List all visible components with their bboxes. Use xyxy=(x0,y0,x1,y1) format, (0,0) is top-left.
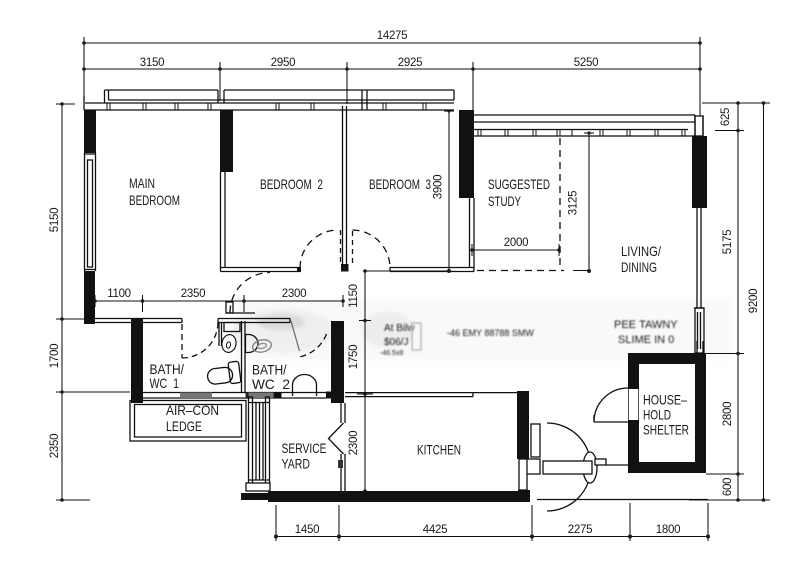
svg-text:SUGGESTED: SUGGESTED xyxy=(488,176,550,192)
svg-text:2275: 2275 xyxy=(568,524,592,536)
svg-text:BEDROOM 3: BEDROOM 3 xyxy=(369,176,431,192)
svg-text:HOLD: HOLD xyxy=(643,406,671,422)
svg-text:625: 625 xyxy=(720,108,732,126)
svg-text:14275: 14275 xyxy=(377,30,407,42)
svg-text:2300: 2300 xyxy=(348,431,360,455)
svg-text:3150: 3150 xyxy=(140,57,164,69)
svg-text:9200: 9200 xyxy=(748,289,760,313)
svg-text:WC 2: WC 2 xyxy=(252,376,290,392)
svg-text:AIR–CON: AIR–CON xyxy=(166,402,219,418)
svg-text:HOUSE–: HOUSE– xyxy=(643,391,687,407)
svg-text:DINING: DINING xyxy=(621,259,657,275)
svg-text:BEDROOM: BEDROOM xyxy=(129,192,180,208)
svg-text:3125: 3125 xyxy=(568,191,580,215)
svg-text:600: 600 xyxy=(722,478,734,496)
svg-text:1450: 1450 xyxy=(295,524,319,536)
svg-text:2800: 2800 xyxy=(722,402,734,426)
svg-text:LEDGE: LEDGE xyxy=(166,418,202,434)
svg-text:BEDROOM 2: BEDROOM 2 xyxy=(260,176,323,192)
svg-text:2350: 2350 xyxy=(181,288,205,300)
svg-text:YARD: YARD xyxy=(282,456,311,472)
svg-text:1700: 1700 xyxy=(49,344,61,368)
svg-text:5150: 5150 xyxy=(49,208,61,232)
svg-text:KITCHEN: KITCHEN xyxy=(417,442,461,458)
svg-text:1100: 1100 xyxy=(107,288,131,300)
svg-text:MAIN: MAIN xyxy=(129,175,155,191)
svg-text:3900: 3900 xyxy=(433,175,445,199)
svg-text:LIVING/: LIVING/ xyxy=(621,243,661,259)
svg-text:SHELTER: SHELTER xyxy=(643,422,689,438)
svg-text:4425: 4425 xyxy=(423,524,447,536)
svg-text:STUDY: STUDY xyxy=(488,193,521,209)
svg-text:SERVICE: SERVICE xyxy=(282,440,327,456)
svg-text:2925: 2925 xyxy=(398,57,422,69)
svg-text:1800: 1800 xyxy=(656,524,680,536)
svg-text:2950: 2950 xyxy=(271,57,295,69)
svg-text:WC 1: WC 1 xyxy=(150,375,180,391)
svg-text:5250: 5250 xyxy=(574,57,598,69)
svg-text:5175: 5175 xyxy=(722,230,734,254)
svg-text:2350: 2350 xyxy=(49,434,61,458)
svg-text:2000: 2000 xyxy=(504,237,528,249)
